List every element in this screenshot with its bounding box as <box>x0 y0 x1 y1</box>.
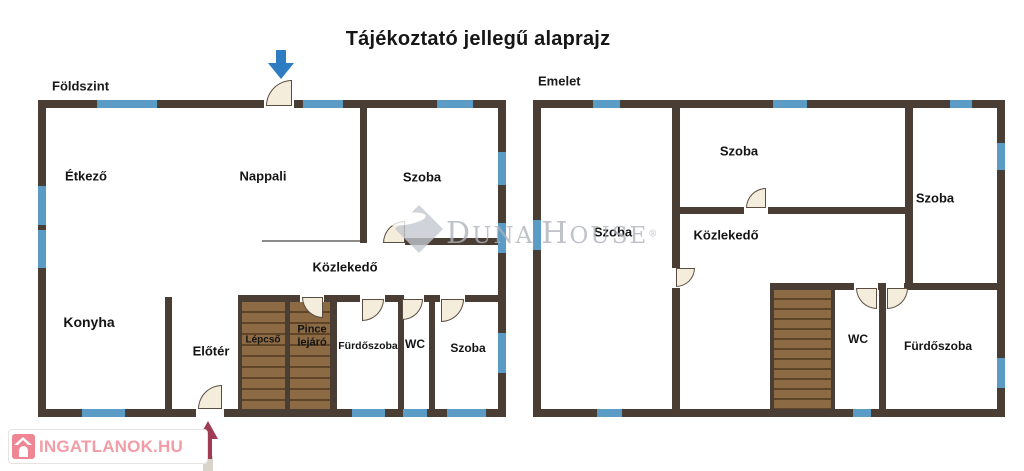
room-label: Közlekedő <box>693 229 758 244</box>
window <box>498 152 506 185</box>
floor-plan-image: Tájékoztató jellegű alaprajz ÉtkezőNappa… <box>0 0 1024 471</box>
window <box>403 409 427 417</box>
wall <box>831 283 835 409</box>
window <box>352 409 385 417</box>
room-label: Szoba <box>403 171 441 186</box>
window <box>97 100 157 108</box>
room-label: Pince lejáró <box>288 323 336 348</box>
door-swing-arc <box>676 268 695 287</box>
window <box>593 100 620 108</box>
wall <box>429 295 435 409</box>
window <box>997 358 1005 388</box>
room-label: Közlekedő <box>312 261 377 276</box>
window <box>38 230 46 268</box>
window <box>447 409 486 417</box>
floor-name: Földszint <box>52 79 109 94</box>
wall <box>905 108 913 285</box>
ingatlanok-logo-text: INGATLANOK.HU <box>39 437 183 457</box>
room-label: Étkező <box>65 170 107 185</box>
wall <box>680 207 907 214</box>
door-swing-arc <box>441 299 464 322</box>
wall <box>672 108 680 268</box>
wall <box>330 295 337 409</box>
room-label: Szoba <box>720 145 758 160</box>
window <box>533 220 541 250</box>
room-label: Konyha <box>63 314 114 330</box>
door-swing-arc <box>266 80 292 106</box>
ingatlanok-logo: INGATLANOK.HU <box>8 429 208 464</box>
house-icon <box>12 434 35 459</box>
window <box>773 100 807 108</box>
room-label: Szoba <box>916 192 954 207</box>
room-label: Lépcső <box>245 334 280 346</box>
wall <box>360 108 367 243</box>
door-swing-arc <box>856 288 877 309</box>
wall <box>165 297 172 409</box>
plan-title: Tájékoztató jellegű alaprajz <box>178 28 778 51</box>
stairs <box>774 290 831 409</box>
open-boundary-line <box>262 240 360 242</box>
window <box>498 223 506 253</box>
wall <box>405 238 498 245</box>
door-swing-arc <box>383 221 405 243</box>
room-label: Előtér <box>193 345 230 360</box>
room-label: Fürdőszoba <box>338 340 398 352</box>
door-swing-arc <box>402 299 423 320</box>
floor-name: Emelet <box>538 74 581 89</box>
window <box>303 100 343 108</box>
window <box>597 409 622 417</box>
door-opening <box>196 409 224 417</box>
stairs <box>290 302 330 409</box>
door-swing-arc <box>887 288 908 309</box>
stairs <box>242 302 285 409</box>
window <box>950 100 972 108</box>
wall <box>533 100 541 417</box>
door-swing-arc <box>198 385 222 409</box>
wall <box>905 283 997 290</box>
window <box>853 409 871 417</box>
room-label: Szoba <box>450 342 485 356</box>
wall <box>879 283 886 409</box>
room-label: WC <box>405 338 425 352</box>
window <box>997 143 1005 170</box>
wall <box>770 283 835 290</box>
room-label: Szoba <box>594 226 632 241</box>
room-label: Nappali <box>240 170 287 185</box>
door-swing-arc <box>746 188 766 208</box>
door-opening <box>744 207 768 214</box>
room-label: WC <box>848 333 868 347</box>
wall <box>672 288 680 409</box>
window <box>38 186 46 225</box>
window <box>437 100 473 108</box>
entrance-arrow-down-icon <box>268 50 294 79</box>
room-label: Fürdőszoba <box>904 340 972 354</box>
door-swing-arc <box>362 299 384 321</box>
window <box>498 333 506 373</box>
window <box>82 409 125 417</box>
